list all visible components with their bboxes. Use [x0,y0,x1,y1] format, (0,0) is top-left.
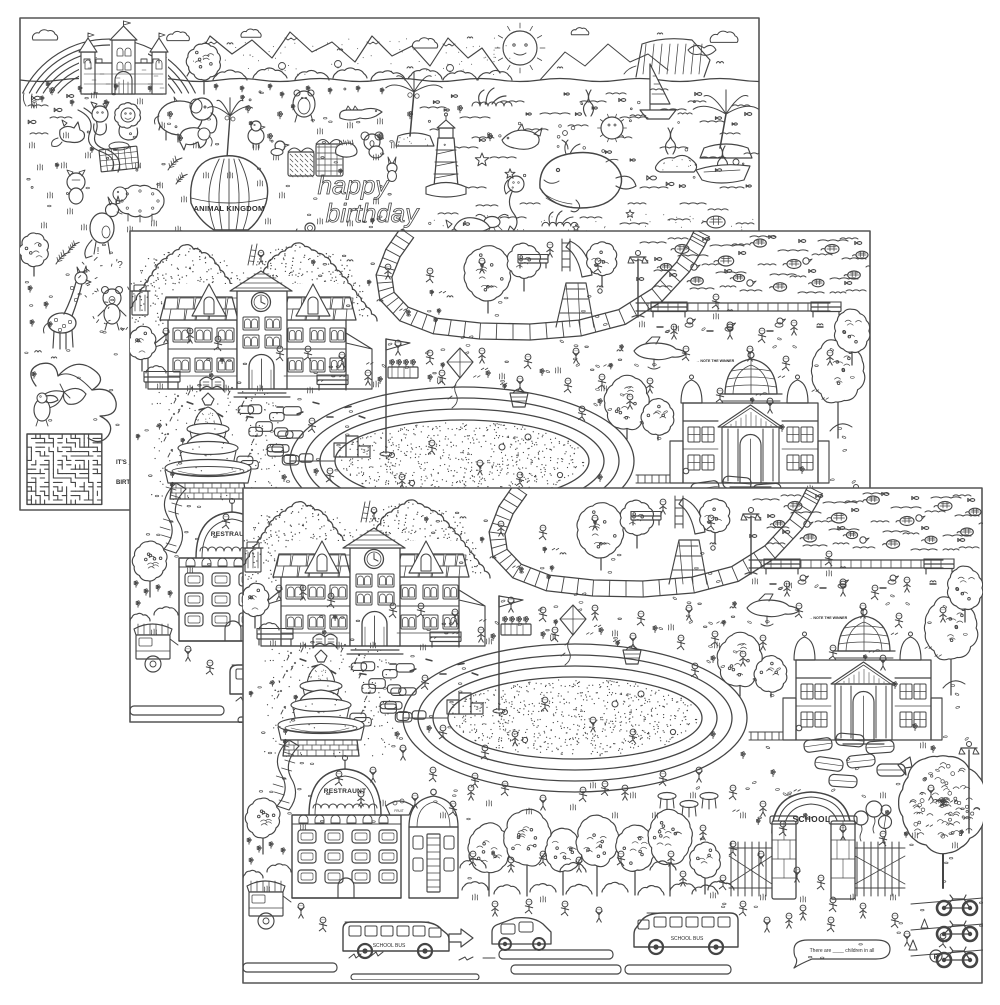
svg-text:happy: happy [318,170,391,200]
svg-text:ANIMAL KINGDOM: ANIMAL KINGDOM [194,204,265,213]
svg-text:birthday: birthday [326,198,420,228]
svg-text:?: ? [117,260,123,271]
svg-text:!: ! [97,246,100,257]
